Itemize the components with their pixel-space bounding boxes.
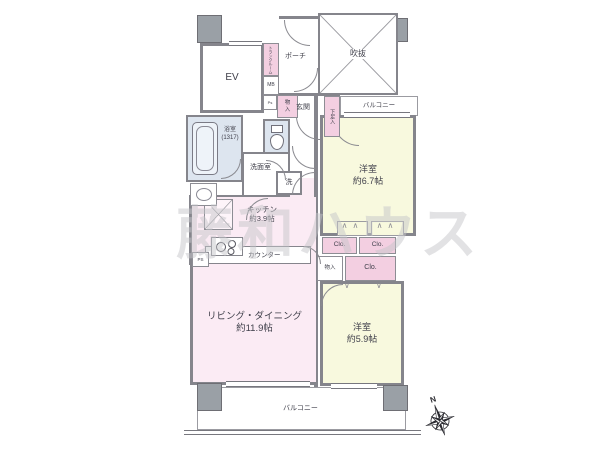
closet-fold-symbol: ∧∧ — [342, 222, 364, 230]
closet-b: Clo. — [359, 237, 396, 254]
living-dining-size: 約11.9帖 — [236, 323, 273, 335]
floor-plan: 藤和ハウス EV トランクルーム MB Ps 物入 ポーチ 吹抜 玄関 下足入 — [0, 0, 600, 450]
bedroom-67-size: 約6.7帖 — [353, 176, 384, 187]
closet-c-label: Clo. — [364, 264, 376, 273]
ev-window — [229, 41, 262, 46]
bedroom-67-closet-door-left: ∧∧ — [337, 221, 368, 236]
elevator-label: EV — [225, 72, 238, 85]
counter-label: カウンター — [248, 252, 281, 260]
mid-storage-label: 物入 — [324, 265, 335, 272]
lower-balcony-label: バルコニー — [283, 405, 318, 414]
stove — [211, 237, 243, 256]
shoe-cabinet: 下足入 — [324, 96, 340, 137]
trunk-room: トランクルーム — [263, 43, 279, 76]
pipe-space-kitchen: PS — [192, 252, 209, 267]
toilet-bowl — [270, 134, 284, 150]
bedroom-59-name: 洋室 — [353, 322, 371, 333]
entry-storage-label: 物入 — [284, 100, 291, 114]
living-dining: リビング・ダイニング 約11.9帖 — [190, 264, 316, 385]
bedroom-59-closet-mark-right: ∨ — [376, 281, 382, 290]
shoe-cabinet-label: 下足入 — [329, 99, 335, 135]
vanity-sink — [190, 183, 217, 206]
mid-storage: 物入 — [317, 256, 343, 281]
balcony-handrail — [184, 430, 421, 435]
entrance-label: 玄関 — [296, 104, 310, 113]
closet-b-label: Clo. — [372, 241, 384, 249]
closet-c: Clo. — [345, 256, 396, 281]
toilet-tank — [271, 125, 283, 133]
bedroom-59-window — [331, 383, 377, 389]
pipe-space-upper: Ps — [263, 95, 277, 110]
pillar-bottom-left — [197, 383, 222, 411]
compass-north-label: N — [429, 394, 437, 404]
bathroom-name: 浴室 — [224, 127, 236, 133]
bathroom-size: (1317) — [221, 135, 238, 141]
compass-rose-icon: N — [414, 388, 464, 446]
entry-storage: 物入 — [277, 95, 298, 118]
stove-burners-icon — [212, 238, 244, 257]
bathroom-label: 浴室 (1317) — [218, 127, 242, 142]
elevator-room: EV — [200, 43, 264, 113]
void-atrium: 吹抜 — [318, 13, 398, 95]
hall-door-upper — [292, 146, 315, 169]
pipe-space-kitchen-label: PS — [197, 257, 203, 263]
upper-balcony-label: バルコニー — [363, 102, 395, 110]
closet-fold-symbol: ∧∧ — [377, 222, 399, 230]
bathtub-inner — [196, 126, 214, 171]
bedroom-67-name: 洋室 — [359, 164, 377, 175]
meter-box: MB — [263, 76, 279, 95]
pillar-bottom-right — [383, 385, 408, 411]
void-label: 吹抜 — [348, 49, 368, 59]
living-dining-window — [226, 381, 310, 387]
closet-a: Clo. — [322, 237, 357, 254]
bedroom-59-closet-mark-left: ∨ — [344, 281, 350, 290]
entrance-inner-door — [296, 116, 320, 140]
bedroom-67-window — [344, 112, 410, 118]
trunk-room-label: トランクルーム — [269, 45, 274, 75]
meter-box-label: MB — [267, 82, 275, 88]
living-dining-name: リビング・ダイニング — [207, 311, 302, 323]
washing-machine-label: 洗 — [286, 179, 293, 188]
pillar-top-left — [197, 15, 222, 43]
bedroom-59-size: 約5.9帖 — [347, 334, 378, 345]
closet-a-label: Clo. — [334, 241, 346, 249]
vanity-basin — [196, 188, 212, 201]
porch-label: ポーチ — [285, 53, 306, 62]
living-entry-door — [303, 246, 321, 264]
bedroom-67-closet-door-right: ∧∧ — [371, 221, 404, 236]
bathtub — [192, 122, 218, 175]
lower-balcony: バルコニー — [197, 387, 406, 430]
pipe-space-upper-label: Ps — [268, 100, 273, 105]
